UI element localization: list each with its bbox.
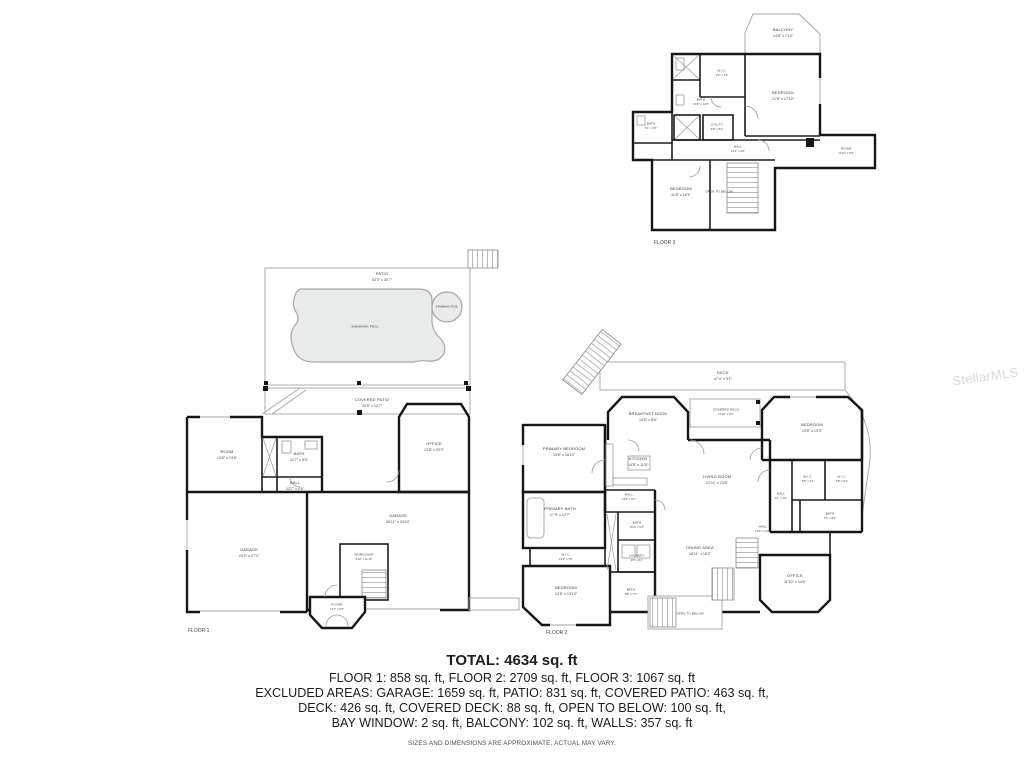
room-label-bath-f1: BATH 12'7" x 8'5" (290, 452, 308, 462)
room-label-deck: DECK 47'4" x 5'1" (714, 371, 732, 381)
room-label-covered-patio: COVERED PATIO 40'5" x 12'7" (355, 398, 389, 408)
room-label-primary-bedroom: PRIMARY BEDROOM 19'8" x 16'10" (543, 447, 585, 457)
disclaimer: SIZES AND DIMENSIONS ARE APPROXIMATE, AC… (0, 740, 1024, 747)
room-label-bath-small: BATH 5'10" x 5'3" (630, 521, 644, 529)
room-label-hall-right: HALL 14'8" x 12'5" (755, 525, 771, 533)
total-area: TOTAL: 4634 sq. ft (0, 652, 1024, 669)
floor2-walls (520, 329, 870, 629)
room-label-laundry: LAUNDRY 9'8" x 8'1" (629, 554, 645, 562)
room-label-bath-right: BATH 5'5" x 8'4" (824, 512, 836, 520)
floor3-caption: FLOOR 3 (654, 240, 675, 246)
room-label-open-to-below-f2: OPEN TO BELOW (676, 612, 704, 616)
room-label-bath-bottom: BATH 8'8" x 7'7" (625, 588, 637, 596)
room-label-room-f1: ROOM 13'8" x 13'6" (217, 450, 237, 460)
floor3-walls (633, 14, 875, 230)
room-label-workshop: WORKSHOP 9'10" x 11'10" (354, 553, 373, 561)
excluded-areas-2: DECK: 426 sq. ft, COVERED DECK: 88 sq. f… (0, 701, 1024, 716)
room-label-kitchen: KITCHEN 14'8" x 11'8" (628, 457, 648, 467)
room-label-living-room: LIVING ROOM 22'11" x 23'8" (703, 475, 731, 485)
room-label-hall-f1: HALL 12'7" x 4'6" (286, 481, 304, 491)
room-label-wic-left: W.I.C. 13'8" x 4'5" (559, 553, 573, 561)
room-label-utility: UTILITY 5'8" x 5'4" (711, 123, 723, 131)
floor1-walls (184, 250, 519, 628)
room-label-office-f1: OFFICE 13'8" x 20'2" (424, 442, 444, 452)
room-label-spa: SWIMMING POOL (436, 305, 458, 308)
room-label-bedroom-tr: BEDROOM 13'8" x 13'3" (801, 423, 823, 433)
floor-areas: FLOOR 1: 858 sq. ft, FLOOR 2: 2709 sq. f… (0, 671, 1024, 686)
excluded-areas-1: EXCLUDED AREAS: GARAGE: 1659 sq. ft, PAT… (0, 686, 1024, 701)
area-summary: TOTAL: 4634 sq. ft FLOOR 1: 858 sq. ft, … (0, 652, 1024, 747)
room-label-breakfast-nook: BREAKFAST NOOK 14'8" x 8'6" (629, 412, 668, 422)
floor1-caption: FLOOR 1 (188, 628, 209, 634)
excluded-areas-3: BAY WINDOW: 2 sq. ft, BALCONY: 102 sq. f… (0, 716, 1024, 731)
room-label-patio: PATIO 53'3" x 30'7" (372, 272, 392, 282)
room-label-wic-a: W.I.C. 3'8" x 6'1" (802, 475, 814, 483)
room-label-hall-center: HALL 13'8" x 3'1" (622, 493, 636, 501)
room-label-dining-area: DINING AREA 18'11" x 18'2" (686, 546, 714, 556)
room-label-foyer: FOYER 11'3" x 5'9" (330, 603, 344, 611)
room-label-wic-f3: W.I.C. 9'0" x 4'9" (716, 69, 728, 77)
room-label-wic-b: W.I.C. 3'8" x 6'1" (836, 475, 848, 483)
floor2-caption: FLOOR 2 (546, 630, 567, 636)
room-label-room-f3: ROOM 11'10" x 6'9" (838, 147, 853, 155)
room-label-bath-small-f3: BATH 6'1" x 5'6" (645, 122, 657, 130)
room-label-bedroom-bl: BEDROOM 13'8" x 13'10" (555, 586, 577, 596)
room-label-garage-right: GARAGE 36'11" x 34'10" (386, 514, 410, 524)
room-label-covered-deck: COVERED DECK 17'10" x 5'1" (713, 408, 739, 416)
room-label-swimming-pool: SWIMMING POOL (351, 325, 379, 329)
room-label-open-to-below-f3: OPEN TO BELOW (705, 190, 733, 194)
room-label-bedroom-f3: BEDROOM 21'8" x 17'10" (772, 91, 794, 101)
room-label-primary-bath: PRIMARY BATH 17'9" x 12'7" (544, 507, 575, 517)
room-label-garage-left: GARAGE 23'5" x 27'4" (239, 548, 259, 558)
room-label-bath-f3: BATH 13'8" x 12'8" (693, 98, 709, 106)
room-label-hall-vertical: HALL 3'1" x 7'0" (775, 492, 787, 500)
room-label-hall-f3: HALL 12'2" x 4'9" (731, 145, 745, 153)
room-label-office-f2: OFFICE 11'10" x 14'5" (784, 574, 806, 584)
room-label-bedroom2-f3: BEDROOM 11'8" x 16'1" (670, 187, 692, 197)
floorplan-sheet: PATIO 53'3" x 30'7" SWIMMING POOL SWIMMI… (0, 0, 1024, 768)
room-label-balcony: BALCONY 14'8" x 7'10" (773, 28, 793, 38)
